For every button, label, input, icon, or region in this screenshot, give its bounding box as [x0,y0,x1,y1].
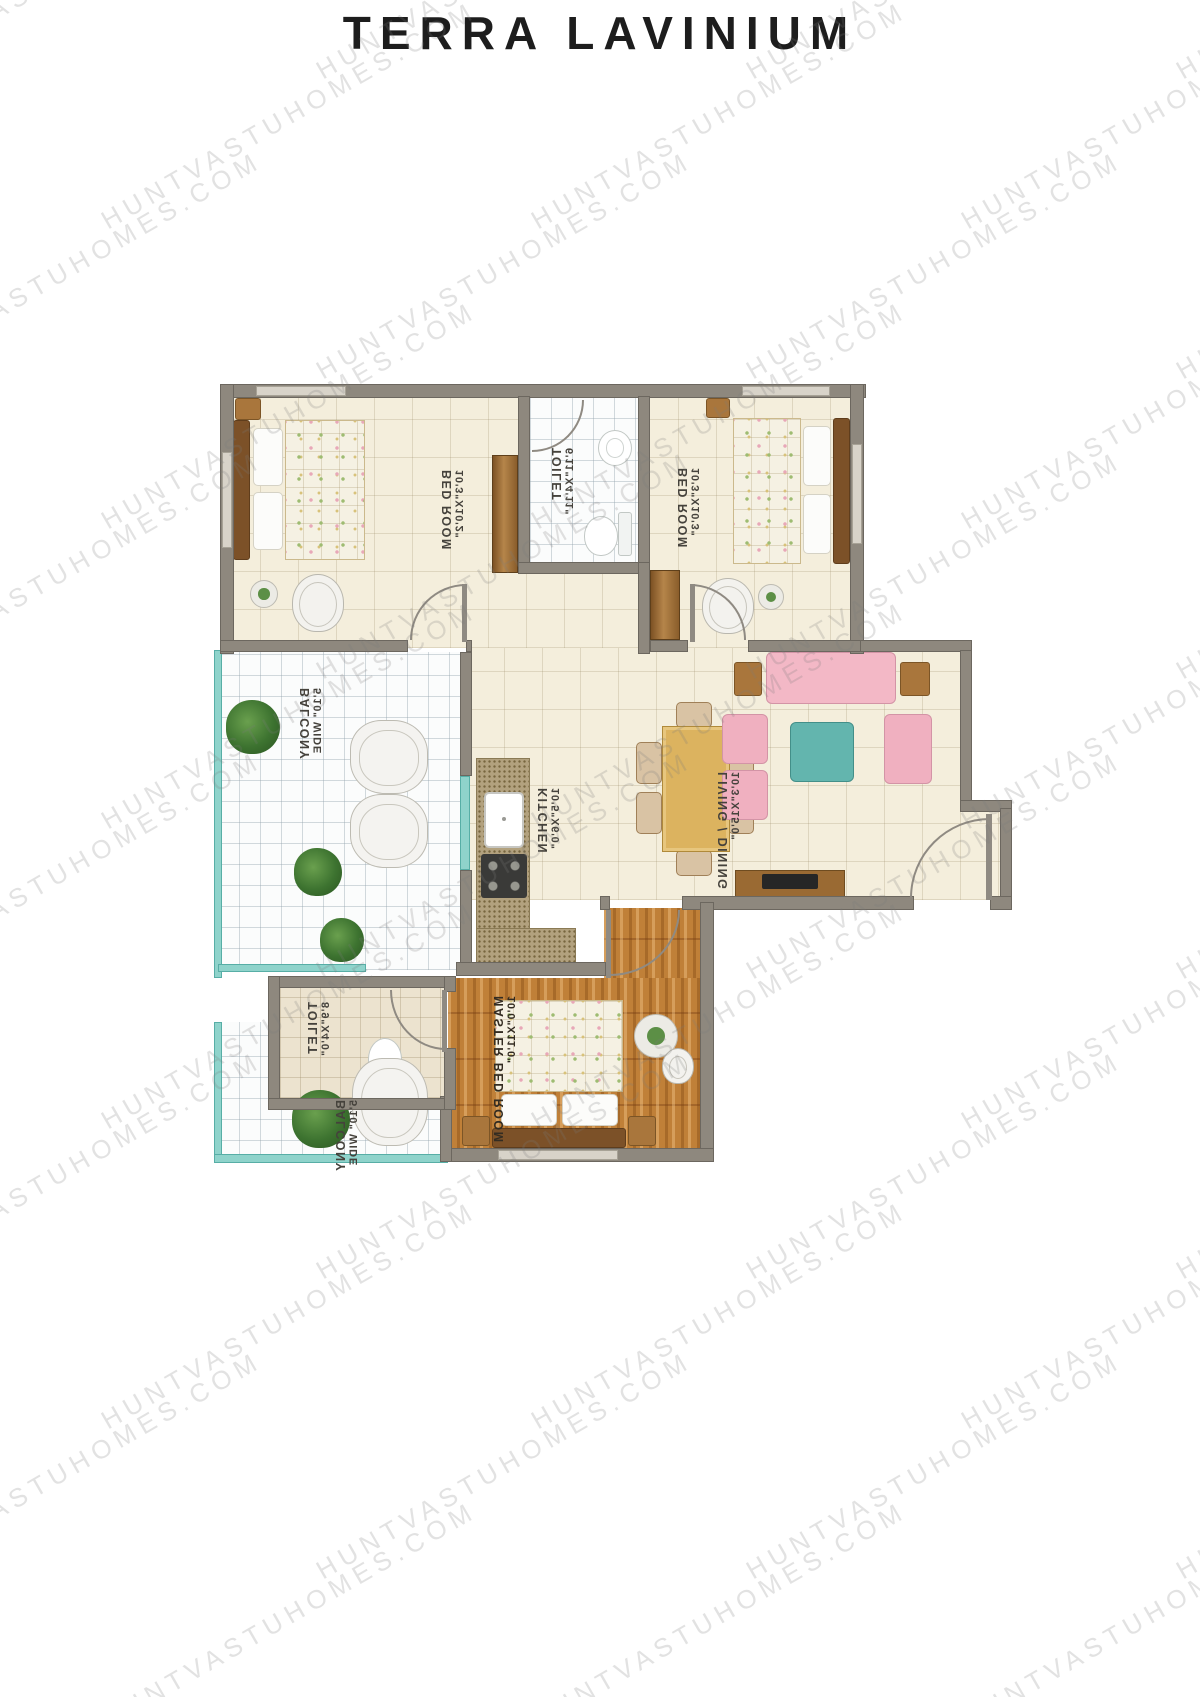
plant [320,918,364,962]
pillow [253,428,283,486]
sliding-door-glass [460,776,470,870]
gas-hob [481,854,527,898]
room-label-living-dining: LIVING / DINING 10'3"X15'0" [716,772,742,890]
window [222,452,232,548]
wall [220,640,408,652]
room-dim: 5'10" WIDE [312,688,324,760]
room-label-balcony-1: BALCONY 5'10" WIDE [298,688,324,760]
glass-railing [214,650,222,978]
dining-chair [676,702,712,728]
plant-table [250,580,278,608]
plant-table [758,584,784,610]
room-label-kitchen: KITCHEN 10'5"X6'0" [536,788,562,854]
room-dim: 10'3"X10'2" [454,470,466,551]
wall [268,1098,456,1110]
door-leaf [462,584,467,642]
kitchen-sink [484,792,524,848]
wc-tank [618,512,632,556]
dining-chair [636,742,662,784]
lounge-chair [350,720,428,794]
armchair [292,574,344,632]
wall [650,640,688,652]
accent-chair [884,714,932,784]
door-leaf [442,990,447,1052]
plant [294,848,342,896]
wall [748,640,866,652]
room-dim: 5'10" WIDE [348,1100,360,1172]
wall [682,896,914,910]
room-dim: 6'11"X4'11" [564,448,576,515]
room-name: LIVING / DINING [716,772,730,890]
window [742,386,830,396]
pillow [803,426,831,486]
window [256,386,346,396]
exterior-notch [972,644,1012,804]
coffee-table [790,722,854,782]
pillow [562,1094,618,1126]
sofa [766,652,896,704]
room-dim: 10'5"X6'0" [550,788,562,854]
dining-chair [636,792,662,834]
double-bed [285,420,365,560]
wall [444,1048,456,1110]
room-name: BALCONY [298,688,312,760]
side-table [462,1116,490,1146]
room-label-toilet-1: TOILET 6'11"X4'11" [550,448,576,515]
door-leaf [606,910,611,978]
wash-basin [598,430,632,466]
wall [700,902,714,1162]
double-bed [733,418,801,564]
glass-railing [214,1022,222,1162]
pillow [253,492,283,550]
room-name: BALCONY [334,1100,348,1172]
wall [960,650,972,808]
side-table [734,662,762,696]
side-table [628,1116,656,1146]
room-label-master-bedroom: MASTER BED ROOM 10'0"X11'0" [492,996,518,1144]
room-dim: 10'3"X15'0" [730,772,742,890]
room-name: TOILET [306,1002,320,1057]
plant [226,700,280,754]
tv [762,874,818,889]
side-table [706,398,730,418]
room-name: BED ROOM [676,468,690,549]
door-leaf [690,584,695,642]
armchair [662,1048,694,1084]
room-label-balcony-2: BALCONY 5'10" WIDE [334,1100,360,1172]
floor-plan: BED ROOM 10'3"X10'2" TOILET 6'11"X4'11" … [0,0,1200,1697]
wall [860,640,972,652]
wall [518,396,530,572]
window [498,1150,618,1160]
glass-railing [218,964,366,972]
dining-chair [676,850,712,876]
bed-headboard [233,420,250,560]
room-name: KITCHEN [536,788,550,854]
room-name: BED ROOM [440,470,454,551]
room-name: TOILET [550,448,564,515]
room-dim: 10'0"X11'0" [506,996,518,1144]
room-label-bedroom-1: BED ROOM 10'3"X10'2" [440,470,466,551]
wall [638,396,650,572]
glass-railing [214,1154,448,1163]
kitchen-counter [476,928,576,966]
wall [600,896,610,910]
bed-headboard [833,418,850,564]
toilet-wc [584,516,618,556]
wardrobe [492,455,518,573]
entrance-door-leaf [986,814,992,900]
wardrobe [650,570,680,640]
wall [638,562,650,654]
room-label-toilet-2: TOILET 8'9"X4'0" [306,1002,332,1057]
wall [990,896,1012,910]
wall [1000,808,1012,910]
lounge-chair [350,794,428,868]
wall [460,870,472,976]
room-label-bedroom-2: BED ROOM 10'3"X10'3" [676,468,702,549]
room-name: MASTER BED ROOM [492,996,506,1144]
wall [460,652,472,776]
side-table [900,662,930,696]
wall [518,562,650,574]
wall [268,976,456,988]
pillow [803,494,831,554]
room-dim: 10'3"X10'3" [690,468,702,549]
wall [268,976,280,1110]
wall [456,962,606,976]
window [852,444,862,544]
side-table [235,398,261,420]
accent-chair [722,714,768,764]
room-dim: 8'9"X4'0" [320,1002,332,1057]
